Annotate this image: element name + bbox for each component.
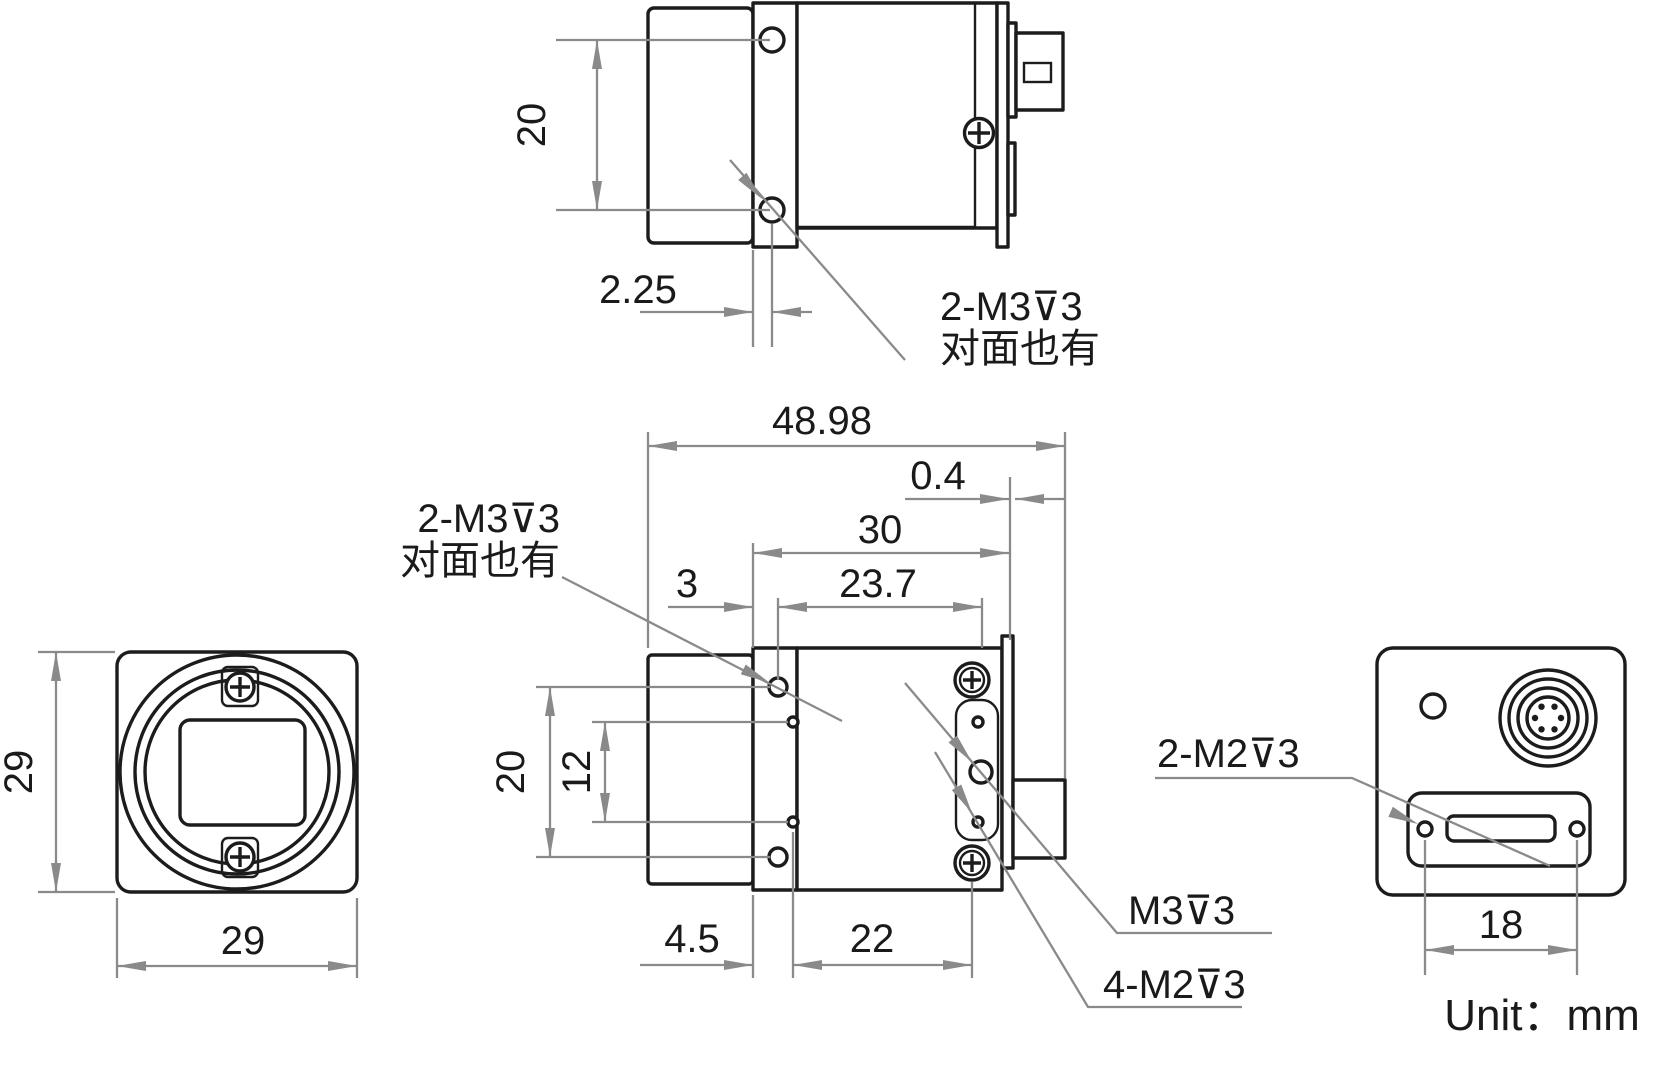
side-m2-hole-bottom	[788, 817, 798, 827]
front-view: 29 29	[0, 652, 357, 978]
side-dim-3-label: 3	[676, 562, 698, 606]
front-sensor-window	[180, 720, 305, 825]
back-data-connector	[1408, 793, 1590, 866]
front-screw-bottom	[226, 843, 254, 871]
side-dim-12-label: 12	[555, 750, 599, 795]
top-dim-2-25-label: 2.25	[599, 268, 677, 312]
back-m2-hole-right	[1570, 822, 1584, 836]
side-dim-4-5-label: 4.5	[664, 917, 720, 961]
front-dim-29-horizontal: 29	[117, 898, 357, 978]
technical-drawing-page: 20 2.25 2-M3⊽3 对面也有	[0, 0, 1662, 1066]
side-view: 48.98 0.4 30 3 23.7	[400, 399, 1272, 1007]
top-view: 20 2.25 2-M3⊽3 对面也有	[510, 3, 1100, 371]
top-rear-tab-lower	[1008, 143, 1015, 215]
side-dim-22-label: 22	[850, 917, 895, 961]
side-dim-23-7-label: 23.7	[839, 562, 917, 606]
top-screw	[965, 119, 994, 148]
camera-dimension-drawing: 20 2.25 2-M3⊽3 对面也有	[0, 0, 1662, 1066]
side-m2-hole-top	[788, 717, 798, 727]
front-dim-29-vertical: 29	[0, 652, 115, 892]
front-screw-top	[226, 673, 254, 701]
side-thread-note-line2: 对面也有	[400, 539, 560, 583]
m2x2-label: 2-M2⊽3	[1157, 732, 1300, 776]
top-thread-note-line1: 2-M3⊽3	[940, 285, 1083, 329]
unit-label: Unit：mm	[1444, 991, 1640, 1040]
back-m2-hole-left	[1418, 822, 1432, 836]
top-thread-note-line2: 对面也有	[940, 327, 1100, 371]
side-dim-3: 3	[668, 562, 753, 607]
side-dim-0-4: 0.4	[905, 454, 1065, 640]
side-dim-20-label: 20	[489, 750, 533, 795]
front-dim-29h-label: 29	[221, 919, 266, 963]
top-dim-20-label: 20	[510, 103, 554, 148]
back-dim-18-label: 18	[1479, 903, 1524, 947]
side-lens-block	[648, 655, 753, 884]
side-dim-48-98-label: 48.98	[772, 399, 872, 443]
m3-label: M3⊽3	[1128, 889, 1235, 933]
side-dim-0-4-label: 0.4	[910, 454, 966, 498]
top-body	[797, 3, 997, 228]
top-lens-block	[648, 8, 753, 243]
side-thread-note-line1: 2-M3⊽3	[417, 497, 560, 541]
back-led-hole	[1421, 694, 1445, 718]
side-dim-22: 22	[793, 882, 972, 978]
side-right-m2-hole-top	[973, 717, 983, 727]
side-screw-top	[955, 663, 989, 697]
side-screw-bottom	[955, 846, 989, 880]
m2x4-label: 4-M2⊽3	[1103, 963, 1246, 1007]
side-dim-30-label: 30	[858, 508, 903, 552]
front-dim-29v-label: 29	[0, 750, 41, 795]
side-m3-hole-bottom	[769, 848, 787, 866]
